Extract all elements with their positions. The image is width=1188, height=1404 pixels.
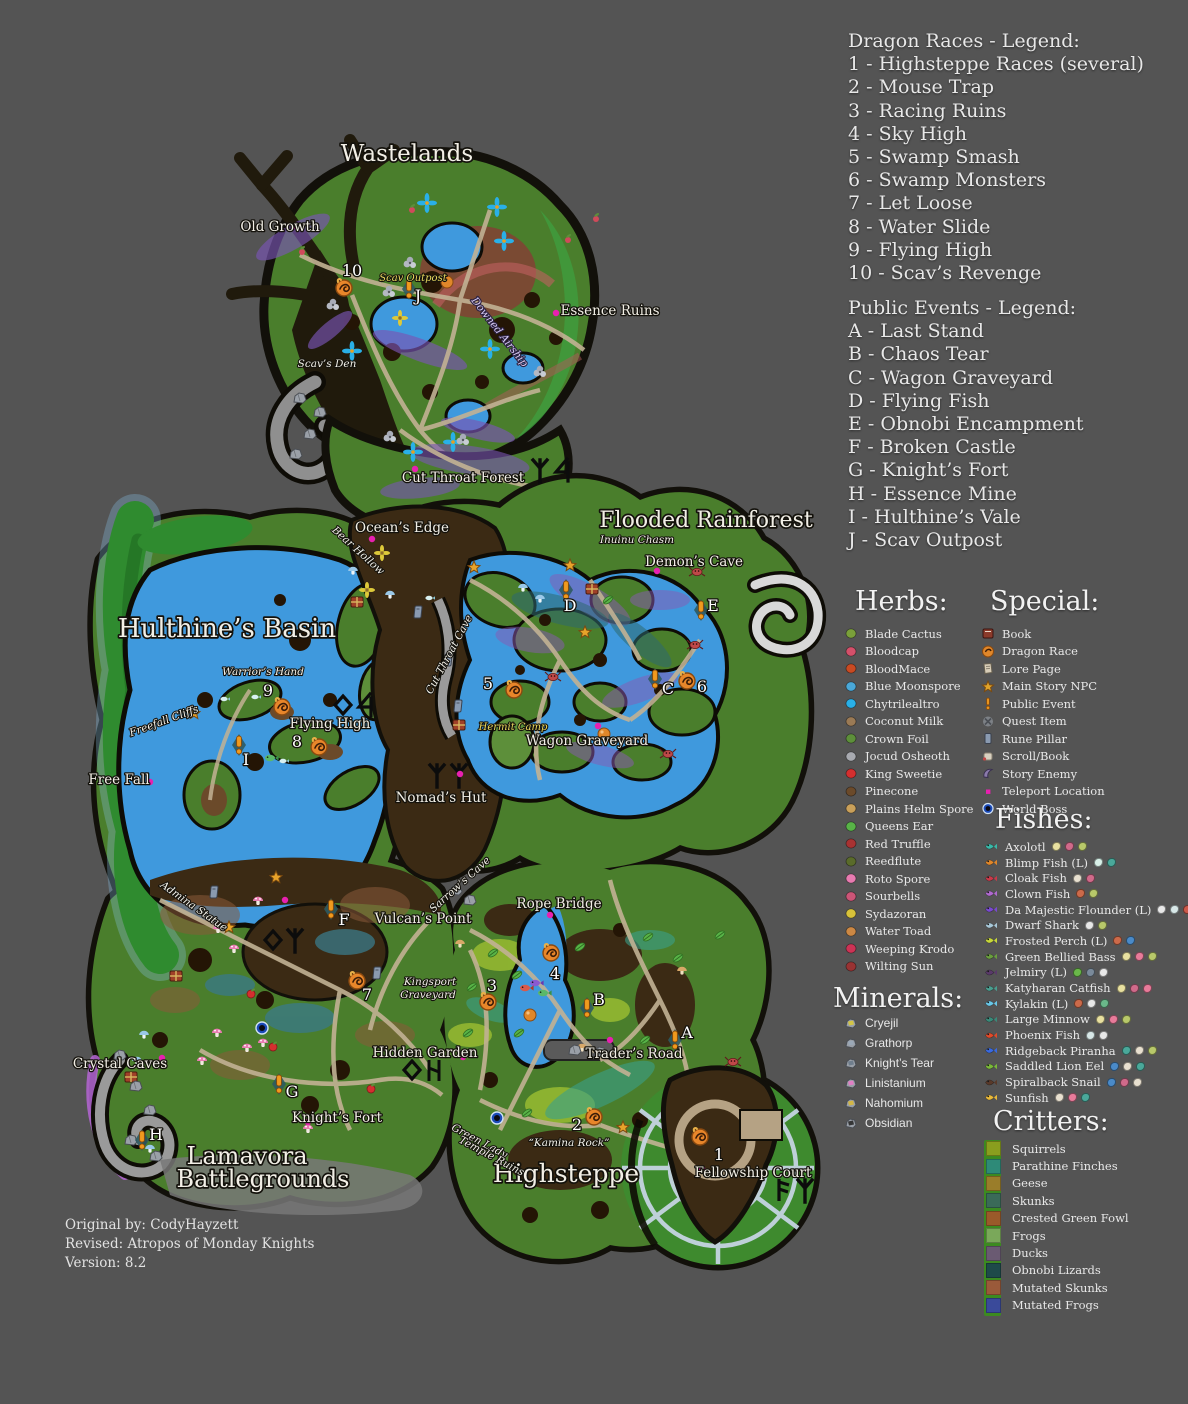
bait-icon [1074,999,1083,1008]
bait-icon [1170,905,1179,914]
legend-item-label: Reedflute [865,854,921,868]
credit-revised: Revised: Atropos of Monday Knights [65,1235,314,1254]
rune-pillar-icon [980,732,995,745]
bait-icon [1109,1015,1118,1024]
bait-icons [1107,1078,1142,1087]
worldboss-icon [256,1022,268,1034]
critter-item: Mutated Skunks [984,1279,1129,1296]
legend-item-label: Obsidian [865,1116,912,1130]
minerals-list: CryejilGrathorpKnight’s TearLinistaniumN… [843,1013,934,1133]
map-label-graveyard: Graveyard [400,989,456,1001]
map-label-cut-throat-forest: Cut Throat Forest [402,470,525,486]
map-label-hulthine-s-basin: Hulthine’s Basin [118,614,337,644]
bait-icon [1086,1031,1095,1040]
bait-icon [1065,842,1074,851]
critter-swatch [986,1193,1001,1208]
map-label-flooded-rainforest: Flooded Rainforest [599,508,813,533]
dragon-race-icon-2 [586,1108,602,1125]
fishes-heading: Fishes: [995,804,1093,835]
herb-item: BloodMace [843,660,973,678]
public-event-icon [980,697,995,710]
critter-item: Ducks [984,1244,1129,1261]
sourbells-icon [843,890,858,903]
event-marker-J: J [413,286,421,305]
saddled-lion-eel-icon [983,1060,998,1073]
jocud-osheoth-icon [843,750,858,763]
race-marker-2: 2 [572,1115,582,1134]
bait-icon [1136,1062,1145,1071]
da-majestic-flounder-l--icon [983,903,998,916]
map-label-scav-s-den: Scav’s Den [298,358,357,370]
bait-icon [1089,889,1098,898]
dragon-races-heading: Dragon Races - Legend: [848,30,1144,53]
pillar-icon [414,606,422,618]
bait-icon [1099,1031,1108,1040]
bait-icon [1076,889,1085,898]
coconut-milk-icon [843,715,858,728]
chest-icon [125,1072,137,1082]
bait-icon [1123,1062,1132,1071]
teleport-dot [553,310,559,316]
legend-item-label: Queens Ear [865,819,933,833]
fish-item: Ridgeback Piranha [983,1043,1188,1059]
teleport-dot [607,1037,613,1043]
legend-item-label: Water Toad [865,924,931,938]
event-marker-F: F [338,910,349,929]
legend-item-label: Green Bellied Bass [1005,950,1116,964]
bait-icon [1100,999,1109,1008]
bait-icon [1096,1015,1105,1024]
race-legend-item: 8 - Water Slide [848,216,1144,239]
critter-swatch [986,1298,1001,1313]
herb-item: Weeping Krodo [843,940,973,958]
credits: Original by: CodyHayzett Revised: Atropo… [65,1216,314,1273]
credit-version: Version: 8.2 [65,1254,314,1273]
legend-item-label: Cryejil [865,1016,898,1030]
fish-item: Spiralback Snail [983,1074,1188,1090]
herb-item: Pinecone [843,783,973,801]
axolotl-icon [983,840,998,853]
legend-item-label: Bloodcap [865,644,919,658]
teleport-dot [547,912,553,918]
legend-item-label: Roto Spore [865,872,930,886]
race-marker-5: 5 [483,674,493,693]
special-heading: Special: [990,586,1099,617]
bait-icon [1094,858,1103,867]
critter-swatch [986,1246,1001,1261]
chytrilealtro-icon [843,697,858,710]
legend-item-label: Spiralback Snail [1005,1075,1101,1089]
public-events-legend: Public Events - Legend: A - Last StandB … [848,297,1083,552]
event-marker-D: D [564,596,577,615]
race-marker-7: 7 [362,985,372,1004]
critter-item: Squirrels [984,1140,1129,1157]
bait-icons [1157,905,1188,914]
legend-item-label: Red Truffle [865,837,931,851]
mineral-item: Obsidian [843,1113,934,1133]
roto-spore-icon [843,872,858,885]
fish-item: Kylakin (L) [983,996,1188,1012]
bait-icon [1130,984,1139,993]
large-minnow-icon [983,1013,998,1026]
bait-icon [1087,999,1096,1008]
critter-item: Mutated Frogs [984,1297,1129,1314]
map-label-rope-bridge: Rope Bridge [516,896,601,912]
special-item: Story Enemy [980,765,1105,783]
critter-swatch [986,1211,1001,1226]
teleport-dot [457,771,463,777]
phoenix-fish-icon [983,1029,998,1042]
jelmiry-l--icon [983,966,998,979]
event-marker-C: C [662,679,674,698]
map-label-battlegrounds: Battlegrounds [177,1165,350,1193]
event-legend-item: D - Flying Fish [848,390,1083,413]
herb-item: Water Toad [843,923,973,941]
chest-icon [453,720,465,730]
legend-item-label: Pinecone [865,784,918,798]
fish-item: Axolotl [983,839,1188,855]
critter-item: Crested Green Fowl [984,1210,1129,1227]
dragon-race-icon [980,645,995,658]
map-label-fellowship-court: Fellowship Court [695,1165,812,1181]
cryejil-icon [843,1017,858,1030]
critter-swatch [986,1141,1001,1156]
bait-icon [1099,968,1108,977]
legend-item-label: Blimp Fish (L) [1005,856,1088,870]
legend-item-label: Axolotl [1005,840,1046,854]
queens-ear-icon [843,820,858,833]
dwarf-shark-icon [983,919,998,932]
race-marker-8: 8 [292,732,302,751]
bait-icon [1113,936,1122,945]
teleport-dot [595,723,601,729]
water-toad-icon [843,925,858,938]
special-item: Rune Pillar [980,730,1105,748]
dragon-race-icon-10 [336,279,352,296]
map-label--kamina-rock-: “Kamina Rock” [529,1137,610,1149]
legend-item-label: Ridgeback Piranha [1005,1044,1116,1058]
mineral-item: Linistanium [843,1073,934,1093]
bait-icon [1073,874,1082,883]
scroll-book-icon [980,750,995,763]
bait-icon [1110,1062,1119,1071]
bloodcap-icon [843,645,858,658]
bait-icons [1094,858,1116,867]
critter-item: Frogs [984,1227,1129,1244]
herb-item: Red Truffle [843,835,973,853]
special-item: Teleport Location [980,783,1105,801]
critter-label: Mutated Skunks [1012,1281,1108,1295]
mineral-item: Cryejil [843,1013,934,1033]
kylakin-l--icon [983,997,998,1010]
critter-label: Ducks [1012,1246,1048,1260]
fish-item: Dwarf Shark [983,917,1188,933]
bait-icon [1055,1093,1064,1102]
herb-item: Queens Ear [843,818,973,836]
fish-item: Da Majestic Flounder (L) [983,902,1188,918]
flower-red-icon [593,212,600,222]
critter-swatch [986,1176,1001,1191]
event-legend-item: J - Scav Outpost [848,529,1083,552]
herb-item: Sydazoran [843,905,973,923]
herb-item: Plains Helm Spore [843,800,973,818]
critter-item: Parathine Finches [984,1157,1129,1174]
chest-icon [586,584,598,594]
mineral-item: Knight’s Tear [843,1053,934,1073]
herb-item: Bloodcap [843,643,973,661]
special-item: Lore Page [980,660,1105,678]
special-item: Dragon Race [980,643,1105,661]
pillar-icon [373,967,381,979]
herb-item: Chytrilealtro [843,695,973,713]
critter-item: Obnobi Lizards [984,1262,1129,1279]
bait-icon [1148,952,1157,961]
legend-item-label: Quest Item [1002,714,1067,728]
herb-item: Coconut Milk [843,713,973,731]
herb-item: Jocud Osheoth [843,748,973,766]
herb-item: Reedflute [843,853,973,871]
critter-label: Squirrels [1012,1142,1066,1156]
event-legend-item: A - Last Stand [848,320,1083,343]
lore-page-icon [980,662,995,675]
critter-label: Obnobi Lizards [1012,1263,1101,1277]
bait-icons [1073,968,1108,977]
legend-item-label: Crown Foil [865,732,929,746]
sydazoran-icon [843,907,858,920]
red-truffle-icon [843,837,858,850]
legend-item-label: Frosted Perch (L) [1005,934,1107,948]
legend-item-label: Phoenix Fish [1005,1028,1080,1042]
main-story-npc-icon [980,680,995,693]
blue-moonspore-icon [843,680,858,693]
bait-icon [1135,952,1144,961]
bait-icon [1157,905,1166,914]
map-label-crystal-caves: Crystal Caves [73,1056,167,1072]
event-legend-item: G - Knight’s Fort [848,459,1083,482]
obsidian-icon [843,1117,858,1130]
legend-item-label: Rune Pillar [1002,732,1067,746]
fish-item: Cloak Fish [983,870,1188,886]
quest-item-icon [980,715,995,728]
event-marker-H: H [149,1125,163,1144]
crown-foil-icon [843,732,858,745]
fish-item: Blimp Fish (L) [983,855,1188,871]
event-marker-I: I [243,750,249,769]
mineral-item: Nahomium [843,1093,934,1113]
grathorp-icon [843,1037,858,1050]
race-marker-3: 3 [487,976,497,995]
dragon-races-legend: Dragon Races - Legend: 1 - Highsteppe Ra… [848,30,1144,285]
weeping-krodo-icon [843,942,858,955]
special-item: Quest Item [980,713,1105,731]
map-label-nomad-s-hut: Nomad’s Hut [396,790,487,806]
special-item: Main Story NPC [980,678,1105,696]
legend-item-label: Teleport Location [1002,784,1105,798]
legend-item-label: Cloak Fish [1005,871,1067,885]
blimp-fish-l--icon [983,856,998,869]
critter-swatch [986,1280,1001,1295]
critter-label: Parathine Finches [1012,1159,1118,1173]
event-marker-B: B [593,990,605,1009]
critters-list: SquirrelsParathine FinchesGeeseSkunksCre… [984,1140,1129,1314]
teleport-location-icon [980,785,995,798]
legend-item-label: Sourbells [865,889,920,903]
herbs-list: Blade CactusBloodcapBloodMaceBlue Moonsp… [843,625,973,975]
race-legend-item: 6 - Swamp Monsters [848,169,1144,192]
race-marker-6: 6 [697,677,707,696]
critters-heading: Critters: [993,1106,1109,1137]
rock-icon [304,429,316,439]
critter-label: Skunks [1012,1194,1055,1208]
event-marker-G: G [286,1082,299,1101]
teleport-dot [369,536,375,542]
special-item: Public Event [980,695,1105,713]
knight-s-tear-icon [843,1057,858,1070]
game-map-page: { "races_legend":{"heading":"Dragon Race… [0,0,1188,1400]
legend-item-label: Blade Cactus [865,627,942,641]
race-marker-10: 10 [342,261,362,280]
spiralback-snail-icon [983,1076,998,1089]
legend-item-label: Clown Fish [1005,887,1070,901]
bait-icons [1073,874,1095,883]
reedflute-icon [843,855,858,868]
map-label-warrior-s-hand: Warrior’s Hand [222,666,304,678]
bait-icon [1133,1078,1142,1087]
bait-icon [1081,1093,1090,1102]
critter-item: Skunks [984,1192,1129,1209]
teleport-dot [282,897,288,903]
herbs-heading: Herbs: [855,586,948,617]
frosted-perch-l--icon [983,934,998,947]
bait-icons [1055,1093,1090,1102]
minerals-heading: Minerals: [833,983,963,1014]
special-item: Scroll/Book [980,748,1105,766]
bait-icon [1122,1046,1131,1055]
bait-icons [1122,952,1157,961]
fish-item: Clown Fish [983,886,1188,902]
map-label-demon-s-cave: Demon’s Cave [645,554,743,570]
event-marker-A: A [680,1023,693,1042]
king-sweetie-icon [843,767,858,780]
credit-original: Original by: CodyHayzett [65,1216,314,1235]
map-label-trader-s-road: Trader’s Road [585,1046,682,1062]
race-legend-item: 3 - Racing Ruins [848,100,1144,123]
book-icon [980,627,995,640]
bait-icons [1085,921,1107,930]
plains-helm-spore-icon [843,802,858,815]
bait-icon [1068,1093,1077,1102]
legend-item-label: King Sweetie [865,767,942,781]
bait-icon [1098,921,1107,930]
map-label-essence-ruins: Essence Ruins [560,303,659,319]
dragon-race-icon-9 [274,698,290,715]
map-label-hermit-camp: Hermit Camp [478,722,548,733]
event-legend-item: C - Wagon Graveyard [848,367,1083,390]
map-label-ocean-s-edge: Ocean’s Edge [355,520,449,536]
fish-item: Saddled Lion Eel [983,1059,1188,1075]
cloak-fish-icon [983,872,998,885]
map-label-scav-outpost: Scav Outpost [379,273,447,284]
bait-icons [1086,1031,1108,1040]
legend-item-label: Da Majestic Flounder (L) [1005,903,1151,917]
legend-item-label: Weeping Krodo [865,942,954,956]
race-marker-1: 1 [714,1145,724,1164]
bait-icon [1107,858,1116,867]
herb-item: Crown Foil [843,730,973,748]
critter-swatch [986,1263,1001,1278]
blade-cactus-icon [843,627,858,640]
bait-icons [1052,842,1087,851]
dragon-race-icon-5 [506,681,522,698]
herb-item: Sourbells [843,888,973,906]
herb-item: Roto Spore [843,870,973,888]
bait-icons [1074,999,1109,1008]
chest-icon [351,597,363,607]
nahomium-icon [843,1097,858,1110]
race-legend-item: 5 - Swamp Smash [848,146,1144,169]
wilting-sun-icon [843,960,858,973]
bait-icon [1122,1015,1131,1024]
legend-item-label: Kylakin (L) [1005,997,1068,1011]
dragon-race-icon-6 [679,672,695,689]
fish-item: Sunfish [983,1090,1188,1106]
clown-fish-icon [983,887,998,900]
legend-item-label: Saddled Lion Eel [1005,1059,1104,1073]
legend-item-label: Coconut Milk [865,714,943,728]
legend-item-label: Public Event [1002,697,1076,711]
legend-item-label: Linistanium [865,1076,926,1090]
bait-icons [1113,936,1135,945]
map-label-vulcan-s-point: Vulcan’s Point [374,911,472,927]
herb-item: King Sweetie [843,765,973,783]
legend-item-label: Dwarf Shark [1005,918,1079,932]
katyharan-catfish-icon [983,982,998,995]
bait-icon [1086,874,1095,883]
rock-icon [290,449,302,459]
bait-icon [1126,936,1135,945]
legend-item-label: Chytrilealtro [865,697,940,711]
bloodmace-icon [843,662,858,675]
map-label-flying-high: Flying High [290,716,371,732]
pillar-icon [210,886,218,898]
legend-item-label: Grathorp [865,1036,912,1050]
map-label-wagon-graveyard: Wagon Graveyard [526,733,649,749]
critter-swatch [986,1159,1001,1174]
dragon-race-icon-1 [692,1128,708,1145]
legend-item-label: Knight’s Tear [865,1056,934,1070]
legend-item-label: Jelmiry (L) [1005,965,1067,979]
bait-icon [1107,1078,1116,1087]
event-marker-E: E [707,596,719,615]
map-label-inuinu-chasm: Inuinu Chasm [599,534,674,546]
race-legend-item: 9 - Flying High [848,239,1144,262]
critter-swatch [986,1228,1001,1243]
race-legend-item: 4 - Sky High [848,123,1144,146]
bait-icon [1085,921,1094,930]
bait-icons [1117,984,1152,993]
critter-label: Crested Green Fowl [1012,1211,1129,1225]
pillar-icon [454,700,462,712]
bait-icon [1148,1046,1157,1055]
linistanium-icon [843,1077,858,1090]
fish-item: Katyharan Catfish [983,980,1188,996]
world-boss-icon [980,802,995,815]
legend-item-label: Sydazoran [865,907,926,921]
pinecone-icon [843,785,858,798]
bait-icon [1183,905,1188,914]
fish-item: Frosted Perch (L) [983,933,1188,949]
race-marker-4: 4 [550,964,560,983]
